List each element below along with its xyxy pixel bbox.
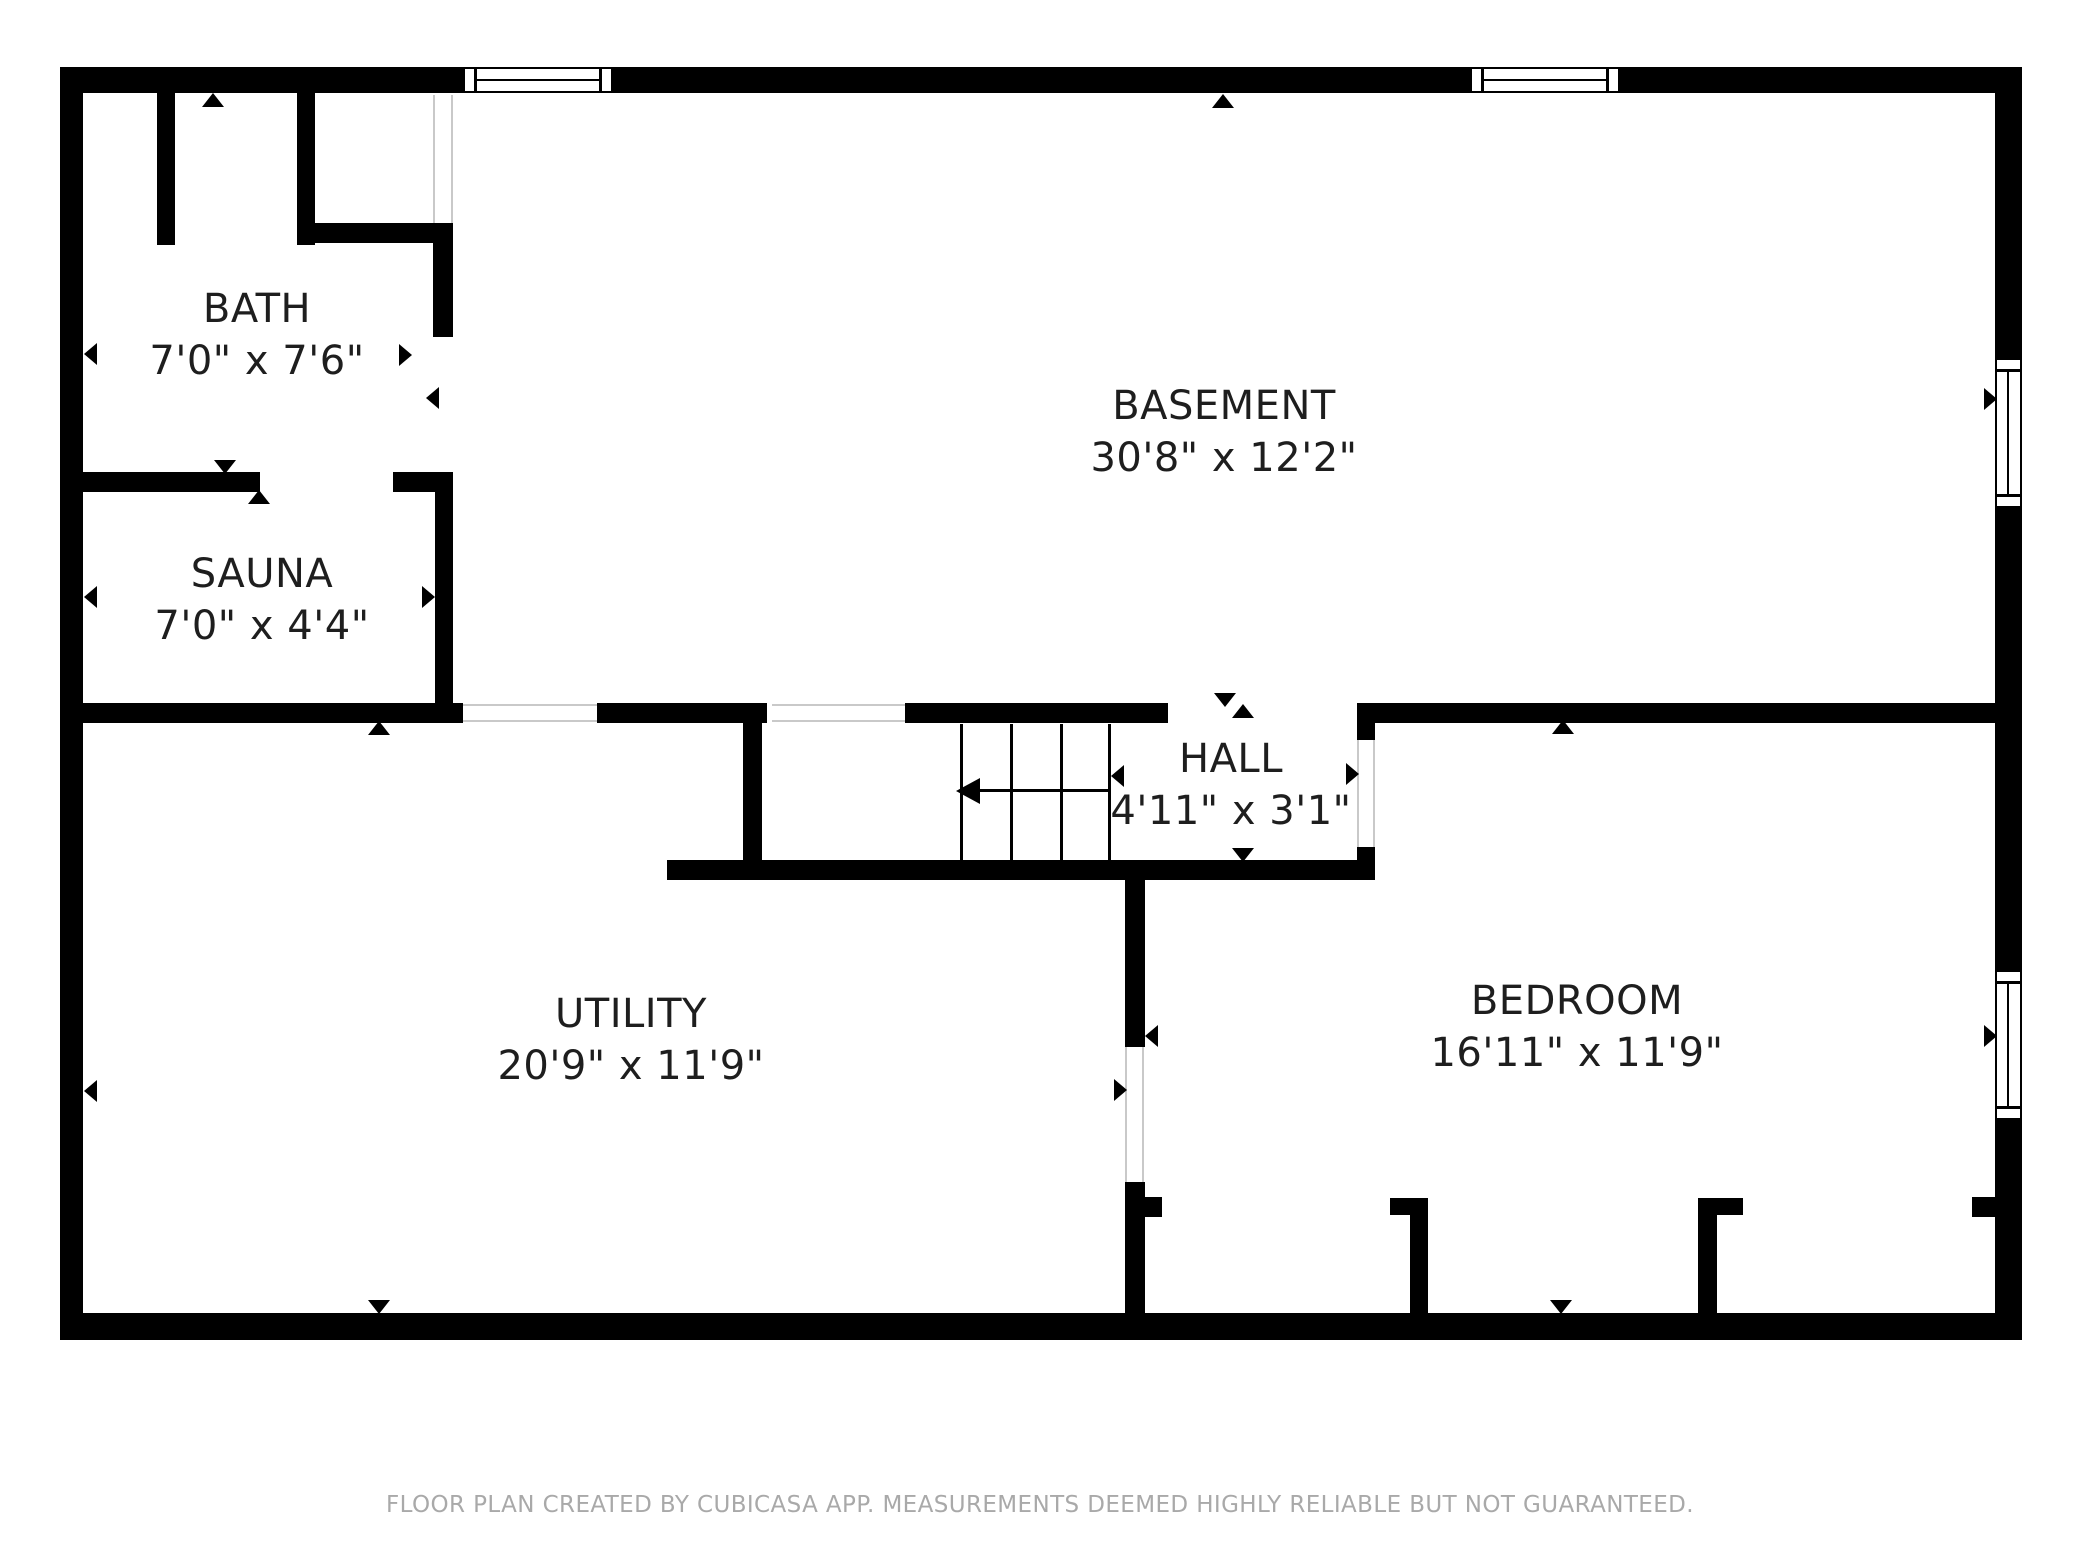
wall-stair-left-wall xyxy=(743,703,762,878)
right-window-basement-icon xyxy=(1995,358,2022,508)
room-dimensions: 7'0" x 4'4" xyxy=(154,600,369,652)
room-dimensions: 16'11" x 11'9" xyxy=(1430,1027,1723,1079)
top-window-left-icon xyxy=(463,67,613,93)
wall-bedroom-top xyxy=(1357,703,1995,723)
door-opening-guide xyxy=(433,95,435,223)
door-arrow-down-icon xyxy=(1550,1300,1572,1314)
room-name: BEDROOM xyxy=(1430,975,1723,1027)
wall-top-2 xyxy=(613,67,1470,93)
door-arrow-right-icon xyxy=(399,344,412,366)
wall-util-bed-div-2 xyxy=(1125,1182,1145,1313)
wall-mid-div-3 xyxy=(905,703,1168,723)
room-dimensions: 30'8" x 12'2" xyxy=(1090,432,1357,484)
door-opening-guide xyxy=(1142,1047,1144,1182)
wall-hall-right-2 xyxy=(1357,847,1375,880)
wall-mid-div-1 xyxy=(60,703,463,723)
room-dimensions: 7'0" x 7'6" xyxy=(149,335,364,387)
door-arrow-down-icon xyxy=(368,1300,390,1314)
wall-closet1-col xyxy=(1410,1198,1428,1313)
door-arrow-left-icon xyxy=(84,343,97,365)
top-window-right-icon xyxy=(1470,67,1620,93)
wall-bath-basement-div xyxy=(433,223,453,337)
room-dimensions: 20'9" x 11'9" xyxy=(497,1040,764,1092)
room-label-hall: HALL4'11" x 3'1" xyxy=(1110,733,1351,837)
window-frame-line xyxy=(475,79,601,81)
window-frame-line xyxy=(2007,982,2009,1108)
door-arrow-up-icon xyxy=(202,93,224,107)
wall-closet2-col xyxy=(1698,1198,1717,1313)
door-opening-guide xyxy=(772,720,905,722)
window-frame-line xyxy=(2007,370,2009,496)
wall-top-3 xyxy=(1620,67,2022,93)
floor-plan: FLOOR PLAN CREATED BY CUBICASA APP. MEAS… xyxy=(0,0,2080,1560)
door-opening-guide xyxy=(1125,1047,1127,1182)
wall-util-bed-div-1 xyxy=(1125,880,1145,1047)
room-name: BATH xyxy=(149,283,364,335)
wall-bottom-outer xyxy=(60,1313,2022,1340)
wall-sauna-top-1 xyxy=(83,472,260,492)
room-name: HALL xyxy=(1110,733,1351,785)
door-arrow-right-icon xyxy=(1114,1079,1127,1101)
wall-hall-right-1 xyxy=(1357,703,1375,740)
wall-mid-div-2 xyxy=(597,703,767,723)
wall-top-1 xyxy=(60,67,463,93)
wall-bath-closet-right xyxy=(297,93,315,245)
door-arrow-right-icon xyxy=(1984,1025,1997,1047)
wall-closet1-nub xyxy=(1390,1198,1428,1215)
stair-line xyxy=(1060,724,1063,860)
door-arrow-left-icon xyxy=(84,586,97,608)
door-opening-guide xyxy=(1357,740,1359,847)
right-window-bedroom-icon xyxy=(1995,970,2022,1120)
door-arrow-up-icon xyxy=(1552,720,1574,734)
door-arrow-left-icon xyxy=(84,1080,97,1102)
window-frame-line xyxy=(1997,981,2020,984)
window-frame-line xyxy=(1482,79,1608,81)
door-arrow-up-icon xyxy=(1212,94,1234,108)
door-arrow-right-icon xyxy=(422,586,435,608)
wall-right-outer-2 xyxy=(1995,508,2022,970)
room-label-bath: BATH7'0" x 7'6" xyxy=(149,283,364,387)
wall-sauna-right xyxy=(435,472,453,703)
window-frame-line xyxy=(1481,69,1484,91)
window-frame-line xyxy=(1606,69,1609,91)
window-frame-line xyxy=(1997,369,2020,372)
window-frame-line xyxy=(1997,494,2020,497)
room-dimensions: 4'11" x 3'1" xyxy=(1110,785,1351,837)
door-arrow-down-icon xyxy=(1232,848,1254,862)
door-opening-guide xyxy=(772,704,905,706)
door-opening-guide xyxy=(451,95,453,223)
door-arrow-up-icon xyxy=(368,721,390,735)
door-arrow-left-icon xyxy=(426,387,439,409)
stair-line xyxy=(978,789,1110,792)
wall-closet2-nub xyxy=(1698,1198,1743,1215)
wall-util-bed-nub xyxy=(1143,1197,1162,1217)
window-frame-line xyxy=(474,69,477,91)
wall-right-closet-nub xyxy=(1972,1197,1995,1217)
room-name: SAUNA xyxy=(154,548,369,600)
room-name: UTILITY xyxy=(497,988,764,1040)
door-opening-guide xyxy=(1373,740,1375,847)
room-name: BASEMENT xyxy=(1090,380,1357,432)
room-label-basement: BASEMENT30'8" x 12'2" xyxy=(1090,380,1357,484)
door-arrow-up-icon xyxy=(248,490,270,504)
door-opening-guide xyxy=(463,720,597,722)
door-arrow-down-icon xyxy=(214,460,236,474)
door-opening-guide xyxy=(463,704,597,706)
room-label-bedroom: BEDROOM16'11" x 11'9" xyxy=(1430,975,1723,1079)
door-arrow-right-icon xyxy=(1984,388,1997,410)
footer-disclaimer: FLOOR PLAN CREATED BY CUBICASA APP. MEAS… xyxy=(0,1492,2080,1518)
room-label-utility: UTILITY20'9" x 11'9" xyxy=(497,988,764,1092)
window-frame-line xyxy=(599,69,602,91)
stair-direction-arrow xyxy=(956,778,980,804)
wall-right-outer-3 xyxy=(1995,1120,2022,1340)
wall-right-outer-1 xyxy=(1995,67,2022,358)
stair-line xyxy=(1010,724,1013,860)
window-frame-line xyxy=(1997,1106,2020,1109)
door-arrow-up-icon xyxy=(1232,704,1254,718)
door-arrow-left-icon xyxy=(1145,1025,1158,1047)
wall-bath-closet-left xyxy=(157,93,175,245)
wall-hall-bottom xyxy=(667,860,1375,880)
room-label-sauna: SAUNA7'0" x 4'4" xyxy=(154,548,369,652)
